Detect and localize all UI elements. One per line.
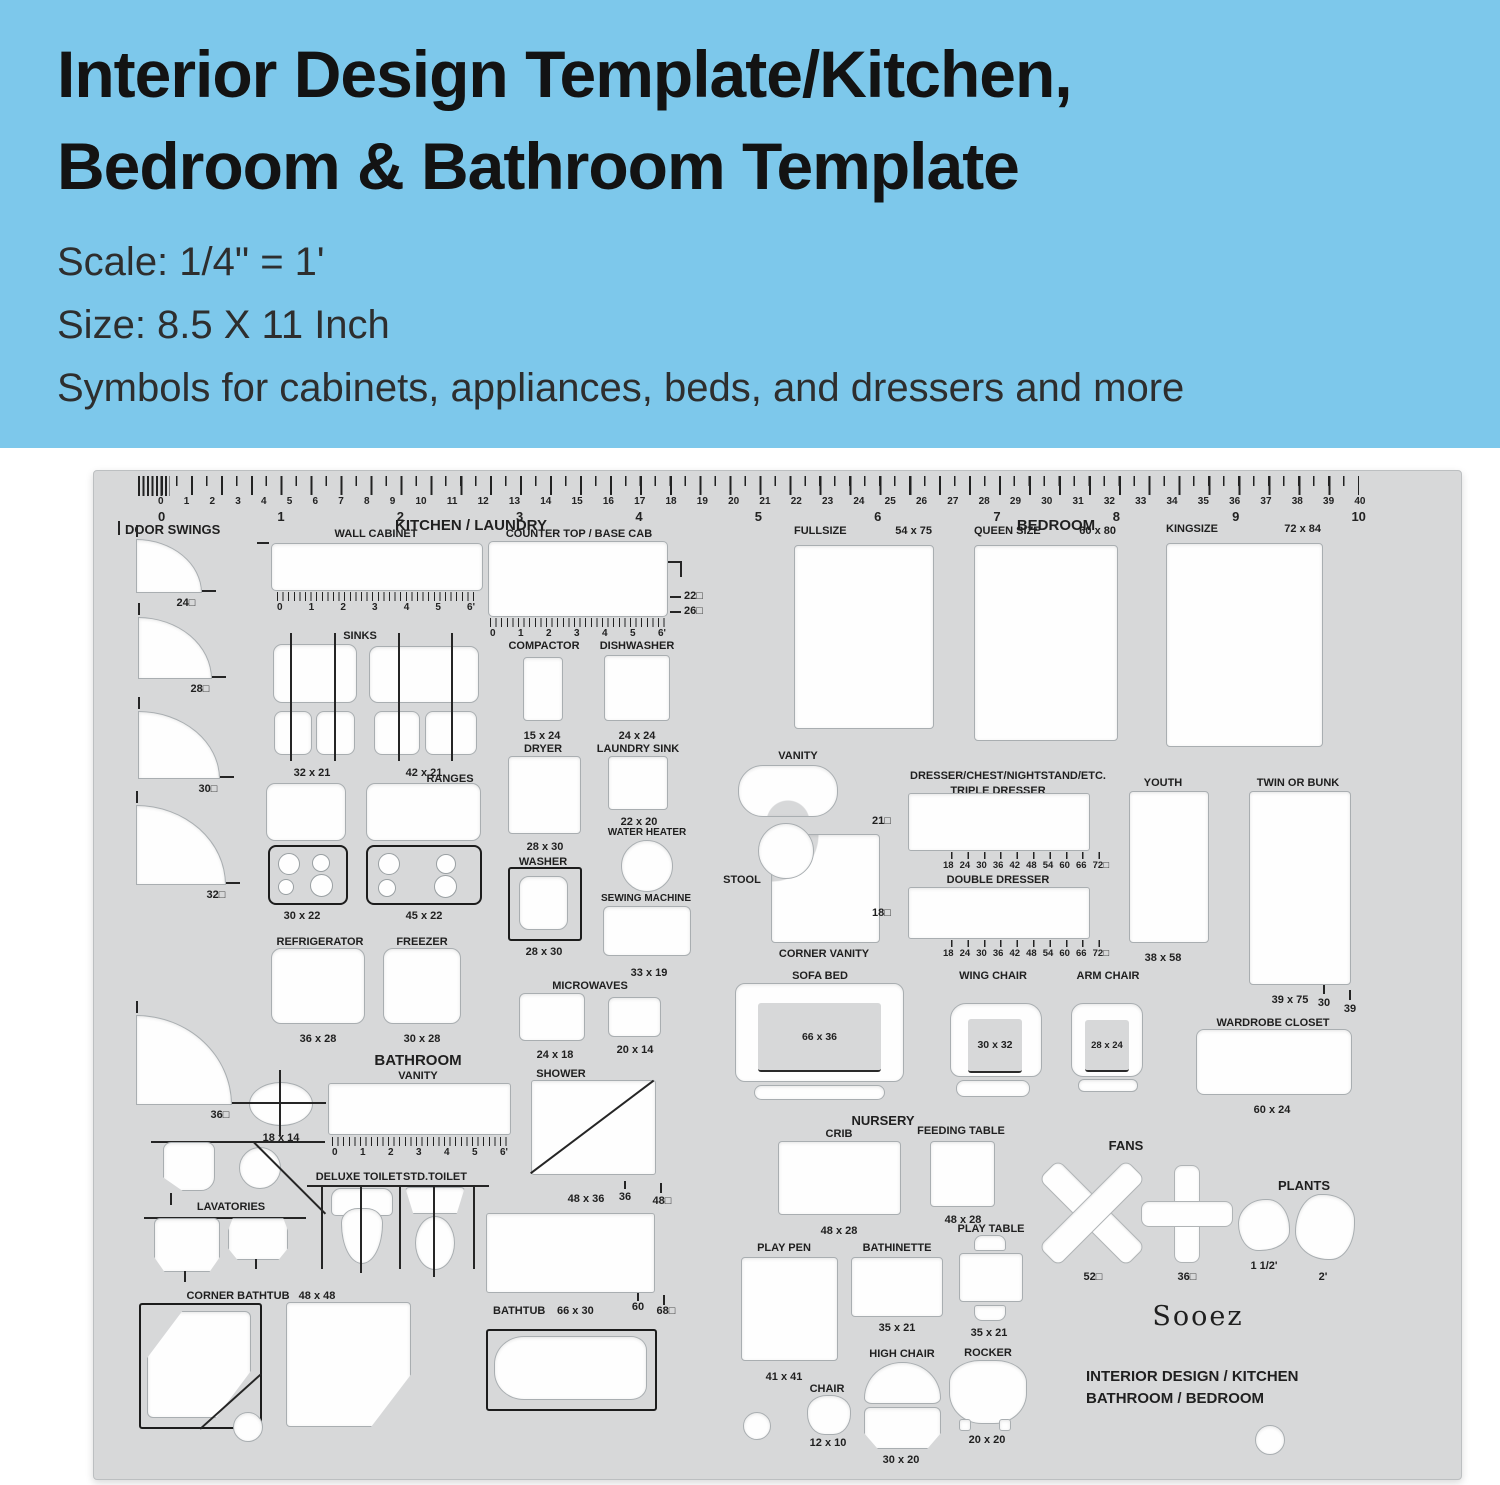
wardrobe-cutout	[1196, 1029, 1352, 1095]
shower-cutout	[531, 1080, 656, 1175]
arm-chair-label: ARM CHAIR	[1077, 971, 1140, 982]
compactor-dim: 15 x 24	[524, 731, 561, 742]
tick-number: 2	[210, 497, 216, 507]
bathroom-vanity-label: VANITY	[398, 1071, 438, 1082]
sink-cutout	[374, 711, 420, 755]
range-cutout	[366, 783, 481, 841]
microwave-cutout	[608, 997, 661, 1037]
laundry-sink-cutout	[608, 756, 668, 810]
tick-number: 1	[184, 497, 190, 507]
crib-cutout	[778, 1141, 901, 1215]
tick-number: 0	[490, 629, 496, 639]
burner	[278, 879, 294, 895]
tick-number: 21	[759, 497, 770, 507]
sofa-bed-island: 66 x 36	[758, 1003, 881, 1072]
rocker-foot-cutout	[999, 1419, 1011, 1431]
range-burner-frame	[268, 845, 348, 905]
corner-bathtub-cutout	[147, 1311, 251, 1418]
tick-number: 17	[634, 497, 645, 507]
burner	[312, 854, 330, 872]
tick-number: 33	[1135, 497, 1146, 507]
tick-number: 6	[874, 510, 881, 523]
tick-number: 9	[390, 497, 396, 507]
sinks-label: SINKS	[343, 631, 377, 642]
lavatory-crosshair	[279, 1070, 281, 1136]
mark	[184, 1271, 186, 1282]
mark	[1349, 990, 1351, 1000]
bathinette-cutout	[851, 1257, 943, 1317]
youth-bed-cutout	[1129, 791, 1209, 943]
twin-label: TWIN OR BUNK	[1257, 778, 1340, 789]
swing-tick	[136, 791, 138, 803]
crib-label: CRIB	[826, 1129, 853, 1140]
rocker-foot-cutout	[959, 1419, 971, 1431]
burner	[378, 879, 396, 897]
ruler-minor-numbers: 0123456789101112131415161718192021222324…	[158, 497, 1366, 507]
freezer-label: FREEZER	[396, 937, 447, 948]
corner-vanity-label: CORNER VANITY	[779, 949, 869, 960]
twin-mark-39: 39	[1344, 1004, 1356, 1015]
mark	[170, 1193, 172, 1205]
counter-depth-26: 26□	[684, 606, 703, 617]
dishwasher-label: DISHWASHER	[600, 641, 675, 652]
fans-label: FANS	[1109, 1139, 1144, 1152]
tick-number: 48	[1026, 861, 1037, 871]
compactor-cutout	[523, 657, 563, 721]
tick-number: 4	[602, 629, 608, 639]
king-label: KINGSIZE	[1166, 524, 1218, 535]
bathroom-header: BATHROOM	[374, 1053, 461, 1068]
tick-number: 24	[853, 497, 864, 507]
queen-bed-cutout	[974, 545, 1118, 741]
tick-number: 10	[416, 497, 427, 507]
tick-number: 8	[1113, 510, 1120, 523]
tick-number: 19	[697, 497, 708, 507]
compactor-label: COMPACTOR	[508, 641, 579, 652]
door-swing-24-size: 24□	[177, 598, 196, 609]
tick-number: 5	[630, 629, 636, 639]
tick-number: 22	[791, 497, 802, 507]
tick-number: 66	[1076, 861, 1087, 871]
lavatory-cutout	[163, 1142, 215, 1191]
tick-number: 5	[287, 497, 293, 507]
scale-text: Scale: 1/4" = 1'	[57, 240, 325, 285]
sink-centerline	[398, 633, 400, 761]
tick-number: 15	[572, 497, 583, 507]
nursery-header: NURSERY	[851, 1114, 914, 1127]
fan-x-cutout	[1036, 1156, 1146, 1268]
freezer-cutout	[383, 948, 461, 1024]
range-dim: 45 x 22	[406, 911, 443, 922]
counter-top-label: COUNTER TOP / BASE CAB	[506, 529, 652, 540]
sink-dim: 32 x 21	[294, 768, 331, 779]
sewing-machine-cutout	[603, 906, 691, 956]
burner	[278, 853, 300, 875]
fan-blade	[1141, 1201, 1233, 1227]
toilet-centerline	[433, 1185, 435, 1277]
page-title-line2: Bedroom & Bathroom Template	[57, 128, 1019, 204]
tick-number: 31	[1073, 497, 1084, 507]
tick-number: 5	[435, 603, 441, 613]
shower-mark-60: 60	[632, 1302, 644, 1313]
queen-dim: 60 x 80	[1079, 526, 1116, 537]
washer-cutout	[519, 876, 568, 930]
tick-number: 18	[943, 861, 954, 871]
tick-number: 5	[755, 510, 762, 523]
swing-tick	[220, 776, 234, 778]
stool-cutout	[758, 823, 814, 879]
sewing-machine-dim: 33 x 19	[631, 968, 668, 979]
tick-number: 37	[1260, 497, 1271, 507]
feeding-table-cutout	[930, 1141, 995, 1207]
counter-top-cutout	[488, 541, 668, 617]
door-swing-28-cutout	[138, 617, 212, 679]
dresser-scale-numbers: 18243036424854606672□	[943, 861, 1109, 871]
sink-cutout	[273, 644, 357, 703]
plants-label: PLANTS	[1278, 1179, 1330, 1192]
bathtub-dim: 66 x 30	[557, 1306, 594, 1317]
lavatories-label: LAVATORIES	[197, 1202, 265, 1213]
rocker-dim: 20 x 20	[969, 1435, 1006, 1446]
std-toilet-label: STD.TOILET	[403, 1172, 467, 1183]
range-dim: 30 x 22	[284, 911, 321, 922]
tick-number: 8	[364, 497, 370, 507]
dresser-scale-numbers: 18243036424854606672□	[943, 949, 1109, 959]
bathtub-label: BATHTUB	[493, 1306, 545, 1317]
tick-number: 23	[822, 497, 833, 507]
fullsize-dim: 54 x 75	[895, 526, 932, 537]
sink-cutout	[274, 711, 312, 755]
tick-number: 7	[338, 497, 344, 507]
rocker-cutout	[949, 1360, 1027, 1424]
play-pen-dim: 41 x 41	[766, 1372, 803, 1383]
tick-number: 18	[665, 497, 676, 507]
bedroom-vanity-cutout	[738, 765, 838, 817]
door-swing-32-size: 32□	[207, 890, 226, 901]
rocker-label: ROCKER	[964, 1348, 1012, 1359]
high-chair-dim: 30 x 20	[883, 1455, 920, 1466]
microwave-dim: 20 x 14	[617, 1045, 654, 1056]
wall-cabinet-cutout	[271, 543, 483, 591]
sofa-bed-label: SOFA BED	[792, 971, 848, 982]
tick-number: 30	[1041, 497, 1052, 507]
washer-frame	[508, 867, 582, 941]
fullsize-label: FULLSIZE	[794, 526, 847, 537]
mark	[637, 1293, 639, 1301]
tick-number: 42	[1010, 861, 1021, 871]
wardrobe-label: WARDROBE CLOSET	[1216, 1018, 1329, 1029]
door-swing-32-cutout	[136, 805, 226, 885]
king-caption: KINGSIZE 72 x 84	[1166, 524, 1321, 535]
tick-number: 4	[444, 1148, 450, 1158]
double-dresser-label: DOUBLE DRESSER	[947, 875, 1050, 886]
shower-label: SHOWER	[536, 1069, 586, 1080]
bathtub-cutout	[494, 1336, 647, 1400]
bathinette-label: BATHINETTE	[863, 1243, 932, 1254]
tick-number: 2	[340, 603, 346, 613]
ruler-minor-ticks	[161, 476, 1359, 486]
arm-chair-island: 28 x 24	[1085, 1020, 1129, 1072]
tick-number: 26	[916, 497, 927, 507]
tick-number: 3	[235, 497, 241, 507]
bathtub-frame	[486, 1329, 657, 1411]
door-swing-36-size: 36□	[211, 1110, 230, 1121]
sewing-machine-label: SEWING MACHINE	[601, 894, 691, 904]
toilet-baseline	[307, 1185, 489, 1187]
play-table-label: PLAY TABLE	[957, 1224, 1024, 1235]
bedroom-vanity-label: VANITY	[778, 751, 818, 762]
arm-chair-seat-cutout	[1078, 1079, 1138, 1092]
dishwasher-cutout	[604, 655, 670, 721]
vanity-ruler-ticks	[332, 1137, 508, 1146]
door-swings-label: DOOR SWINGS	[125, 523, 220, 536]
tick-number: 36	[993, 861, 1004, 871]
dryer-label: DRYER	[524, 744, 562, 755]
play-pen-label: PLAY PEN	[757, 1243, 811, 1254]
footer-line1: INTERIOR DESIGN / KITCHEN	[1086, 1369, 1299, 1384]
shower-cutout-2	[486, 1213, 655, 1293]
wing-chair-label: WING CHAIR	[959, 971, 1027, 982]
tick-number: 4	[261, 497, 267, 507]
double-dresser-cutout	[908, 887, 1090, 939]
tick-number: 66	[1076, 949, 1087, 959]
ruler-major-numbers: 012345678910	[158, 510, 1366, 523]
high-chair-cutout	[864, 1407, 941, 1449]
std-toilet-tank-cutout	[405, 1187, 465, 1214]
door-swing-30-cutout	[138, 711, 220, 779]
wall-cabinet-ruler-ticks	[277, 592, 475, 601]
dryer-cutout	[508, 756, 581, 834]
mark	[663, 1295, 665, 1305]
tick-number: 54	[1043, 861, 1054, 871]
king-dim: 72 x 84	[1284, 524, 1321, 535]
high-chair-cutout	[864, 1362, 941, 1404]
twin-mark-30: 30	[1318, 998, 1330, 1009]
swing-tick	[226, 882, 240, 884]
play-table-handle-cutout	[974, 1305, 1006, 1321]
vanity-ruler-numbers: 0123456'	[332, 1148, 508, 1158]
king-bed-cutout	[1166, 543, 1323, 747]
twin-bed-cutout	[1249, 791, 1351, 985]
swing-tick	[202, 590, 216, 592]
tick-number: 24	[960, 949, 971, 959]
counter-depth-22: 22□	[684, 591, 703, 602]
mark	[257, 542, 269, 544]
std-toilet-bowl-cutout	[415, 1216, 455, 1270]
plant-dim-1: 1 1/2'	[1250, 1261, 1277, 1272]
tick-number: 34	[1166, 497, 1177, 507]
microwave-cutout	[519, 993, 585, 1041]
size-text: Size: 8.5 X 11 Inch	[57, 303, 390, 348]
tick-number: 30	[976, 949, 987, 959]
page: { "banner": { "title_line1": "Interior D…	[0, 0, 1500, 1485]
tick-number: 30	[976, 861, 987, 871]
footer-line2: BATHROOM / BEDROOM	[1086, 1391, 1264, 1406]
swing-tick	[136, 525, 138, 537]
tick-number: 5	[472, 1148, 478, 1158]
tick-number: 13	[509, 497, 520, 507]
stencil-sheet: 0123456789101112131415161718192021222324…	[93, 470, 1462, 1480]
tick-number: 2	[388, 1148, 394, 1158]
tick-number: 27	[947, 497, 958, 507]
tick-number: 0	[158, 497, 164, 507]
play-table-dim: 35 x 21	[971, 1328, 1008, 1339]
tick-number: 3	[372, 603, 378, 613]
stool-label: STOOL	[723, 875, 761, 886]
chair-cutout	[807, 1395, 851, 1435]
sink-cutout	[369, 646, 479, 703]
crib-dim: 48 x 28	[821, 1226, 858, 1237]
corner-shower-48-cutout	[286, 1302, 411, 1427]
water-heater-label: WATER HEATER	[608, 828, 687, 838]
washer-dim: 28 x 30	[526, 947, 563, 958]
water-heater-cutout	[621, 840, 673, 892]
shower-mark-36: 36	[619, 1192, 631, 1203]
queen-caption: QUEEN SIZE 60 x 80	[974, 526, 1116, 537]
swing-tick	[138, 603, 140, 615]
fullsize-caption: FULLSIZE 54 x 75	[794, 526, 932, 537]
dresser-scale-ticks	[951, 852, 1101, 859]
corner-bathtub-dim: 48 x 48	[299, 1291, 336, 1302]
counter-ruler-numbers: 0123456'	[490, 629, 666, 639]
deluxe-toilet-bowl-cutout	[341, 1208, 383, 1264]
sink-centerline	[290, 633, 292, 761]
plant-cutout	[1238, 1199, 1290, 1251]
lavatory-cutout	[154, 1218, 220, 1272]
fan-dim-52: 52□	[1084, 1272, 1103, 1283]
tick-number: 60	[1059, 949, 1070, 959]
burner	[310, 874, 333, 897]
tick-number: 72□	[1093, 861, 1109, 871]
mark	[255, 1259, 257, 1269]
tick-number: 29	[1010, 497, 1021, 507]
tick-number: 12	[478, 497, 489, 507]
wing-chair-island: 30 x 32	[968, 1019, 1022, 1073]
mark	[624, 1181, 626, 1189]
queen-label: QUEEN SIZE	[974, 526, 1041, 537]
registration-hole	[1255, 1425, 1285, 1455]
mark	[660, 1183, 662, 1193]
tick-number: 18	[943, 949, 954, 959]
microwave-dim: 24 x 18	[537, 1050, 574, 1061]
range-cutout	[266, 783, 346, 841]
tick-number: 10	[1351, 510, 1365, 523]
fullsize-bed-cutout	[794, 545, 934, 729]
tick-number: 2	[546, 629, 552, 639]
double-dresser-depth: 18□	[872, 908, 891, 919]
toilet-bar	[399, 1185, 401, 1269]
registration-hole	[233, 1412, 263, 1442]
play-table-handle-cutout	[974, 1235, 1006, 1251]
tick-number: 48	[1026, 949, 1037, 959]
tick-number: 1	[518, 629, 524, 639]
mark	[680, 561, 682, 577]
tick-number: 54	[1043, 949, 1054, 959]
plant-dim-2: 2'	[1319, 1272, 1328, 1283]
youth-dim: 38 x 58	[1145, 953, 1182, 964]
mark	[1323, 985, 1325, 994]
tick-number: 11	[447, 497, 458, 507]
swing-tick	[138, 697, 140, 709]
tick-number: 0	[332, 1148, 338, 1158]
feeding-table-label: FEEDING TABLE	[917, 1126, 1005, 1137]
tick-number: 3	[574, 629, 580, 639]
tick-number: 1	[277, 510, 284, 523]
toilet-centerline	[360, 1185, 362, 1273]
microwaves-label: MICROWAVES	[552, 981, 628, 992]
tick-number: 6'	[658, 629, 666, 639]
tick-number: 72□	[1093, 949, 1109, 959]
brand-logo: Sooez	[1152, 1303, 1243, 1330]
range-burner-frame	[366, 845, 482, 905]
shower-mark-68: 68□	[657, 1306, 676, 1317]
door-swing-30-size: 30□	[199, 784, 218, 795]
corner-bathtub-label: CORNER BATHTUB	[186, 1291, 289, 1302]
tick-number: 6'	[467, 603, 475, 613]
mark	[670, 596, 681, 598]
bathinette-dim: 35 x 21	[879, 1323, 916, 1334]
dryer-dim: 28 x 30	[527, 842, 564, 853]
dresser-scale-ticks	[951, 940, 1101, 947]
counter-ruler-ticks	[490, 618, 666, 627]
sink-centerline	[451, 633, 453, 761]
play-pen-cutout	[741, 1257, 838, 1361]
wardrobe-dim: 60 x 24	[1254, 1105, 1291, 1116]
play-table-cutout	[959, 1253, 1023, 1302]
mark	[670, 611, 681, 613]
lavatory-cutout	[228, 1218, 288, 1260]
tick-number: 3	[416, 1148, 422, 1158]
refrigerator-dim: 36 x 28	[300, 1034, 337, 1045]
tick-number: 14	[540, 497, 551, 507]
banner: Interior Design Template/Kitchen, Bedroo…	[0, 0, 1500, 448]
sink-cutout	[316, 711, 355, 755]
door-swing-36-cutout	[136, 1015, 232, 1105]
triple-dresser-depth: 21□	[872, 816, 891, 827]
tick-number: 6'	[500, 1148, 508, 1158]
tick-number: 4	[635, 510, 642, 523]
toilet-bar	[321, 1185, 323, 1269]
door-swing-28-size: 28□	[191, 684, 210, 695]
chair-label: CHAIR	[810, 1384, 845, 1395]
tick-number: 1	[360, 1148, 366, 1158]
registration-hole	[743, 1412, 771, 1440]
page-title-line1: Interior Design Template/Kitchen,	[57, 36, 1072, 112]
tick-number: 28	[979, 497, 990, 507]
tick-number: 6	[313, 497, 319, 507]
refrigerator-cutout	[271, 948, 365, 1024]
tick-number: 32	[1104, 497, 1115, 507]
freezer-dim: 30 x 28	[404, 1034, 441, 1045]
lavatory-oval-cutout	[249, 1082, 313, 1126]
tick-number: 39	[1323, 497, 1334, 507]
laundry-sink-label: LAUNDRY SINK	[597, 744, 680, 755]
burner	[378, 853, 400, 875]
shower-mark-48: 48□	[653, 1196, 672, 1207]
tick-number: 1	[309, 603, 315, 613]
tick-number: 35	[1198, 497, 1209, 507]
lavatory-cutout	[239, 1147, 281, 1189]
door-swing-24-cutout	[136, 539, 202, 593]
swing-tick	[136, 1001, 138, 1013]
tagline-text: Symbols for cabinets, appliances, beds, …	[57, 366, 1184, 411]
sink-centerline	[334, 633, 336, 761]
twin-dim: 39 x 75	[1272, 995, 1309, 1006]
wing-chair-seat-cutout	[956, 1080, 1030, 1097]
tick-number: 40	[1354, 497, 1365, 507]
fan-plus-cutout	[1141, 1165, 1231, 1261]
youth-label: YOUTH	[1144, 778, 1183, 789]
